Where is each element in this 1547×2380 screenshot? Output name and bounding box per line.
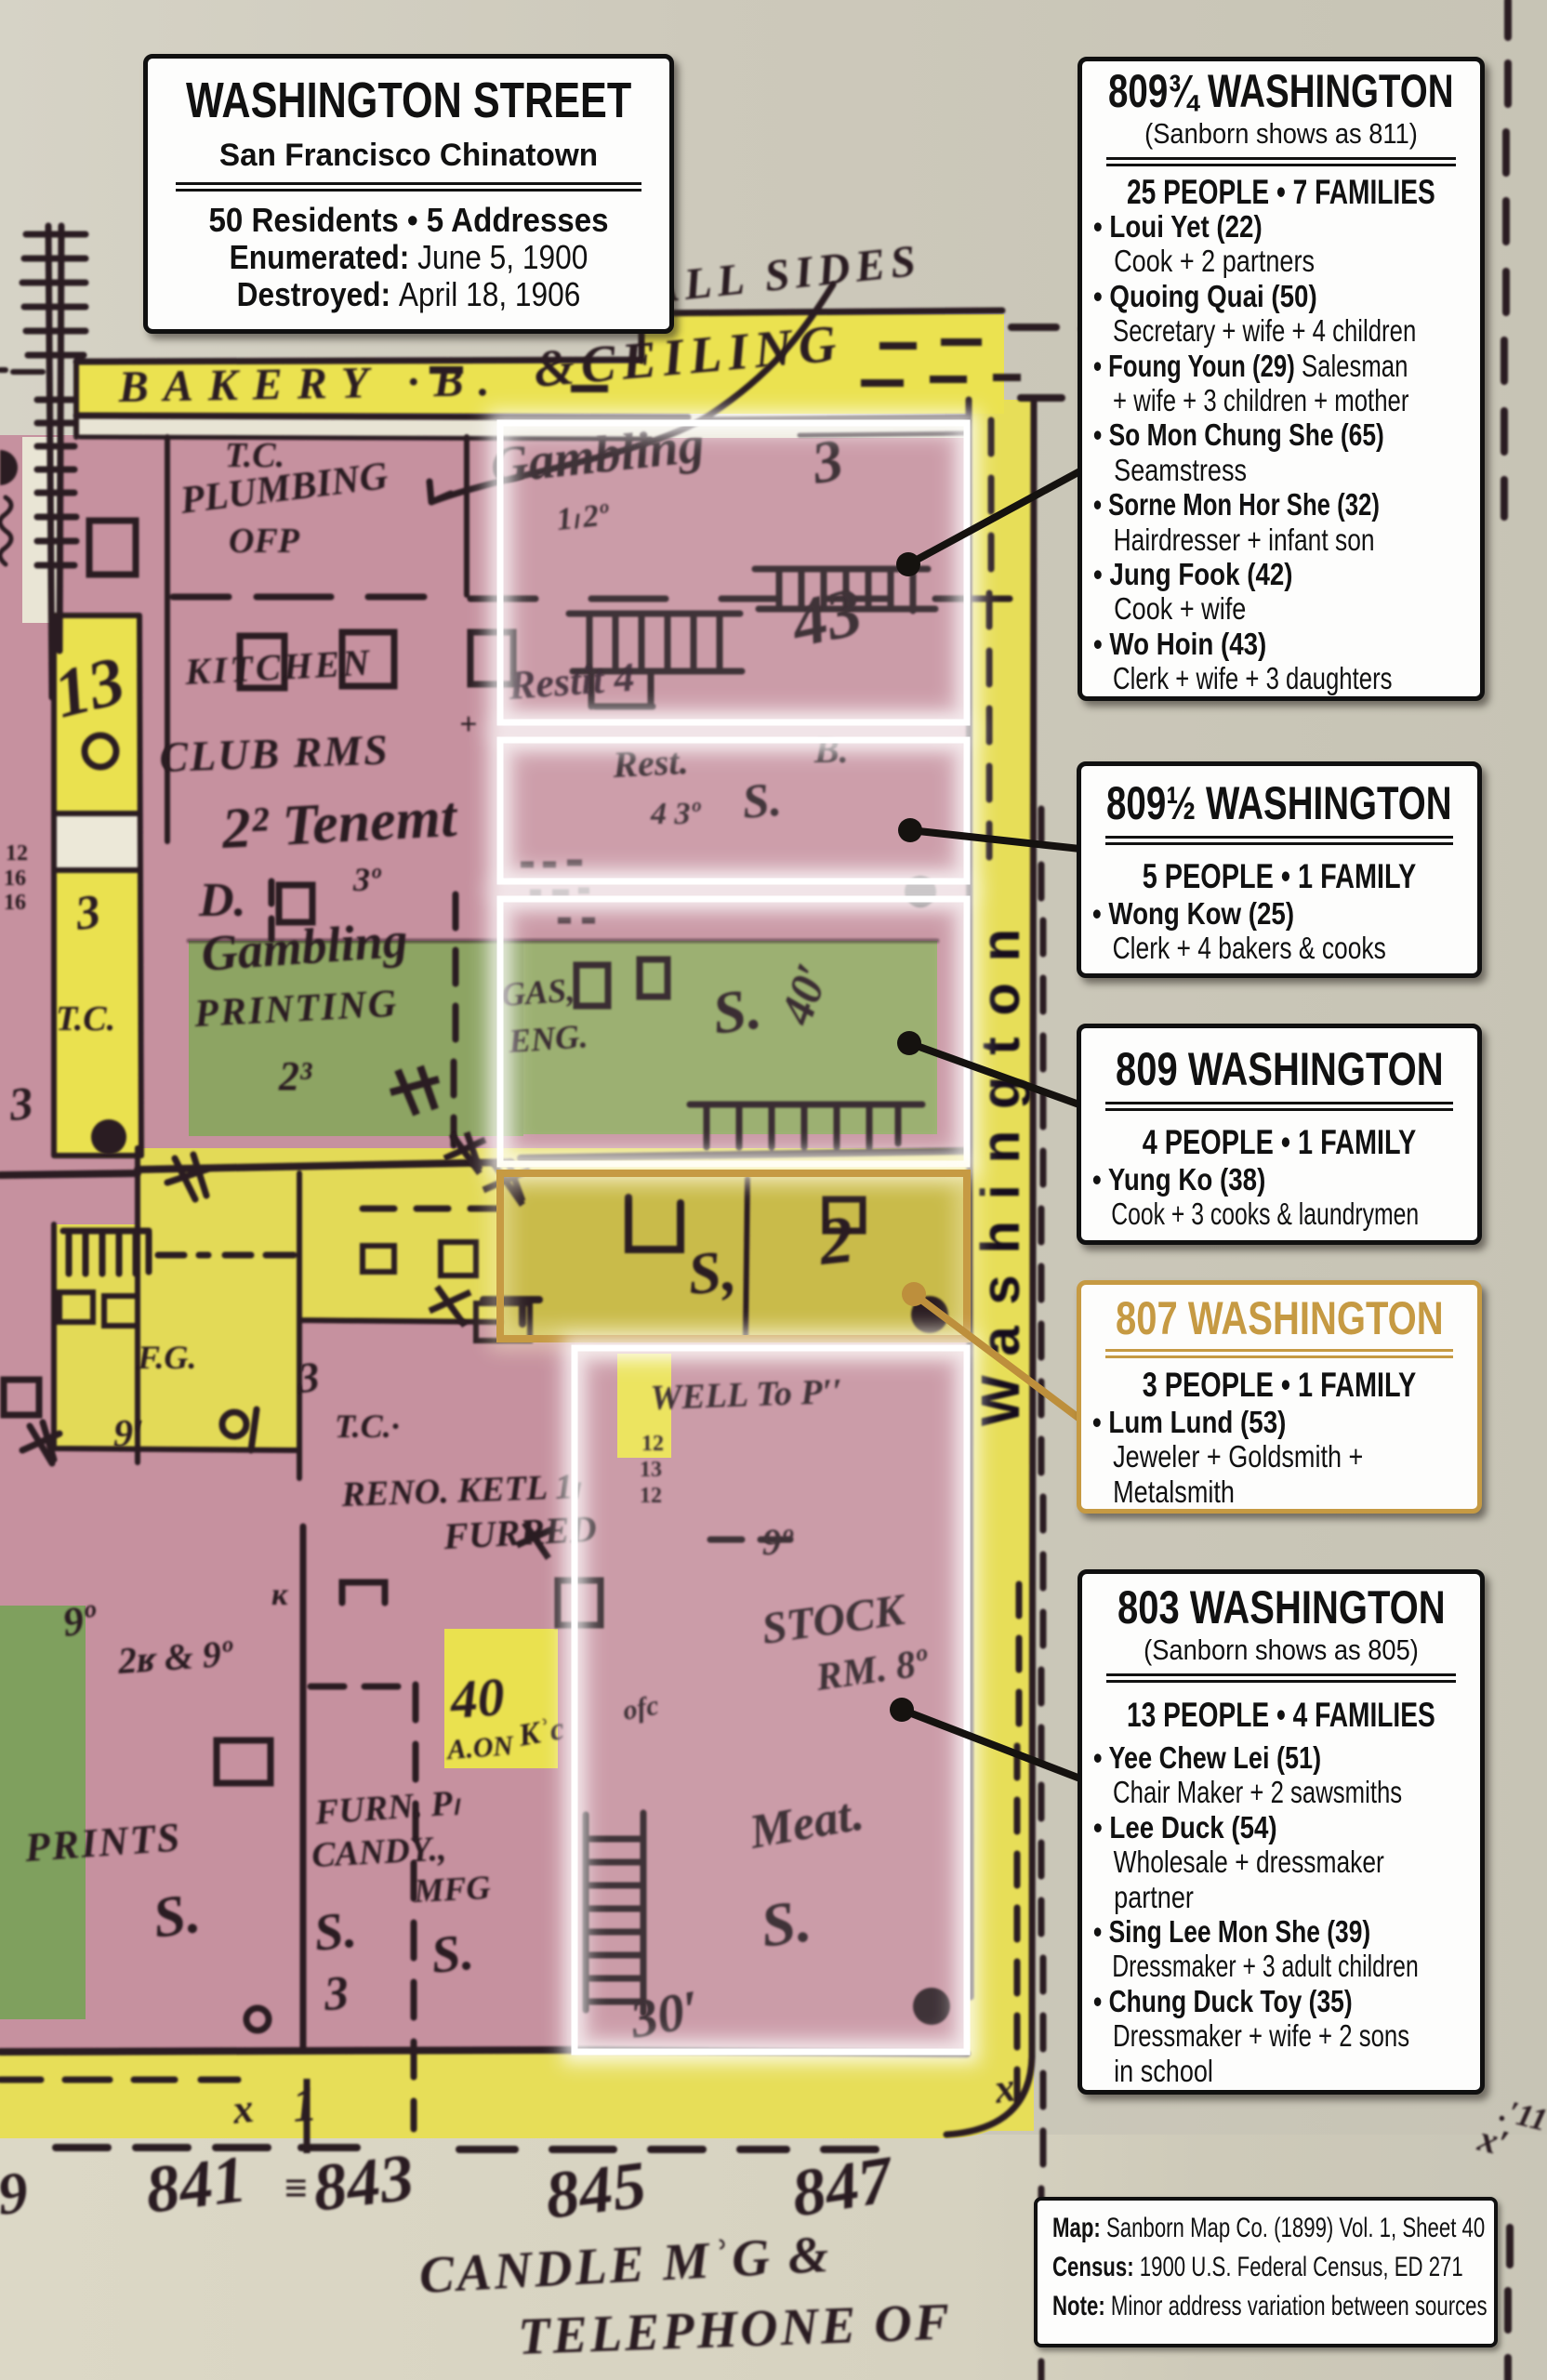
svg-text:S.: S. xyxy=(311,1901,359,1963)
svg-text:MFG: MFG xyxy=(412,1869,491,1910)
svg-text:к: к xyxy=(271,1578,288,1612)
svg-text:CLUB RMS: CLUB RMS xyxy=(159,725,390,781)
svg-text:12: 12 xyxy=(6,841,28,866)
svg-text:S,: S, xyxy=(685,1237,739,1307)
svg-text:2ʁ & 9º: 2ʁ & 9º xyxy=(115,1632,235,1682)
svg-text:16: 16 xyxy=(4,866,26,891)
svg-text:845: 845 xyxy=(541,2147,650,2233)
svg-text:≡: ≡ xyxy=(284,2165,308,2211)
svg-text:16: 16 xyxy=(4,891,26,915)
svg-text:841: 841 xyxy=(141,2141,250,2228)
svg-text:F.G.: F.G. xyxy=(137,1339,196,1376)
svg-text:40: 40 xyxy=(447,1666,506,1730)
svg-text:S.: S. xyxy=(429,1924,476,1985)
svg-text:A.ON: A.ON xyxy=(444,1730,515,1765)
svg-text:+: + xyxy=(459,707,477,742)
svg-text:2² Tenemt: 2² Tenemt xyxy=(219,786,459,861)
svg-text:3: 3 xyxy=(322,1966,350,2021)
svg-text:9′: 9′ xyxy=(113,1413,144,1456)
svg-text:3º: 3º xyxy=(352,861,381,898)
svg-text:CANDY.,: CANDY., xyxy=(311,1829,447,1875)
svg-text:BAKERY ·B.: BAKERY ·B. xyxy=(117,356,505,412)
svg-text:T.C.·: T.C.· xyxy=(335,1408,400,1445)
svg-text:T.C.: T.C. xyxy=(56,999,115,1038)
svg-text:843: 843 xyxy=(309,2139,417,2226)
svg-text:2³: 2³ xyxy=(278,1053,312,1099)
svg-text:S.: S. xyxy=(149,1882,204,1950)
svg-text:OFP: OFP xyxy=(229,522,300,561)
svg-text:D.: D. xyxy=(198,874,246,927)
